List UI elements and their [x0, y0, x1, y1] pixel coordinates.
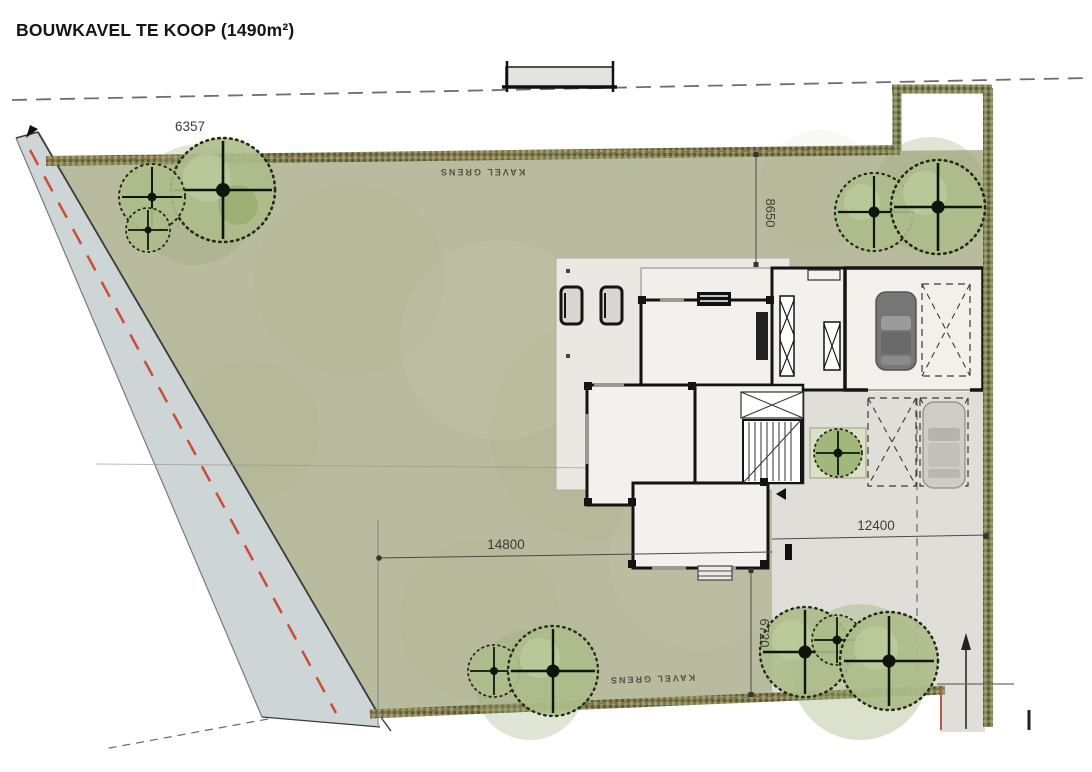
tree	[840, 612, 938, 710]
garage-car	[876, 292, 916, 370]
site-plan-svg: 6357 8650 14800 12400 6720 KAVEL GRENS	[0, 0, 1092, 772]
lounge-chair-icon	[561, 287, 582, 324]
tree	[814, 429, 862, 477]
kavel-grens-label-top: KAVEL GRENS	[439, 167, 525, 177]
dim-6357-label: 6357	[175, 119, 205, 134]
parked-car	[923, 402, 965, 488]
road-edge-dashed-extension	[104, 719, 268, 749]
page-title: BOUWKAVEL TE KOOP (1490m²)	[16, 20, 294, 41]
kitchen-counter	[756, 312, 768, 360]
dim-6720-label: 6720	[757, 619, 772, 648]
tree	[126, 208, 170, 252]
dim-12400-label: 12400	[857, 518, 895, 533]
tree	[891, 160, 985, 254]
tree	[171, 138, 275, 242]
site-plan-page: BOUWKAVEL TE KOOP (1490m²)	[0, 0, 1092, 772]
dim-8650-label: 8650	[763, 199, 778, 228]
scale-bar	[502, 61, 617, 92]
garage	[845, 268, 983, 390]
dimension-6357: 6357	[175, 119, 205, 134]
lounge-chair-icon	[601, 287, 622, 324]
stairs	[741, 392, 803, 483]
porch-steps	[698, 566, 732, 580]
tree	[508, 626, 598, 716]
dim-14800-label: 14800	[487, 537, 525, 552]
